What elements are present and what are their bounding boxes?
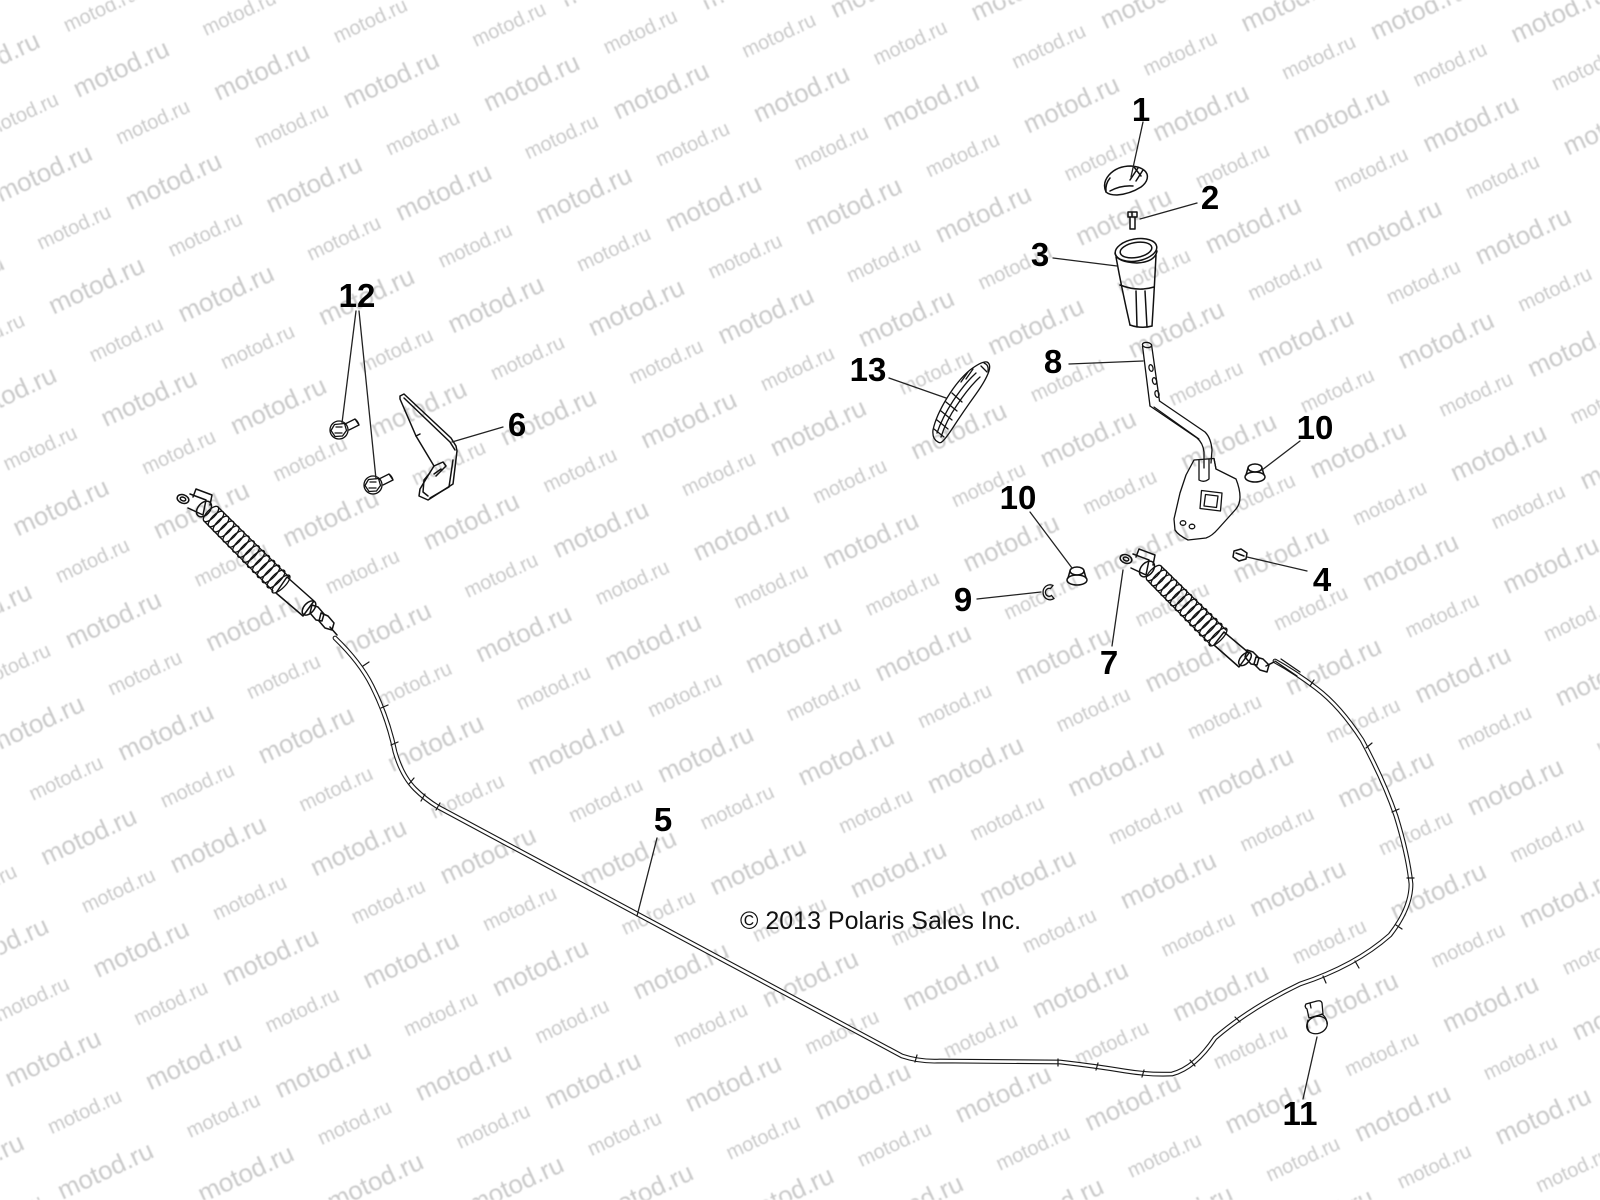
- svg-text:13: 13: [850, 351, 887, 388]
- svg-text:1: 1: [1132, 91, 1150, 128]
- svg-text:11: 11: [1283, 1095, 1318, 1132]
- svg-text:9: 9: [954, 581, 972, 618]
- svg-text:© 2013 Polaris Sales Inc.: © 2013 Polaris Sales Inc.: [740, 907, 1021, 935]
- svg-text:2: 2: [1201, 179, 1219, 216]
- svg-text:12: 12: [339, 277, 376, 314]
- svg-text:6: 6: [508, 406, 526, 443]
- svg-text:10: 10: [1000, 479, 1037, 516]
- svg-text:8: 8: [1044, 343, 1062, 380]
- svg-text:3: 3: [1031, 236, 1049, 273]
- svg-text:10: 10: [1297, 409, 1334, 446]
- svg-text:4: 4: [1313, 561, 1332, 598]
- svg-text:5: 5: [654, 801, 672, 838]
- svg-text:7: 7: [1100, 644, 1118, 681]
